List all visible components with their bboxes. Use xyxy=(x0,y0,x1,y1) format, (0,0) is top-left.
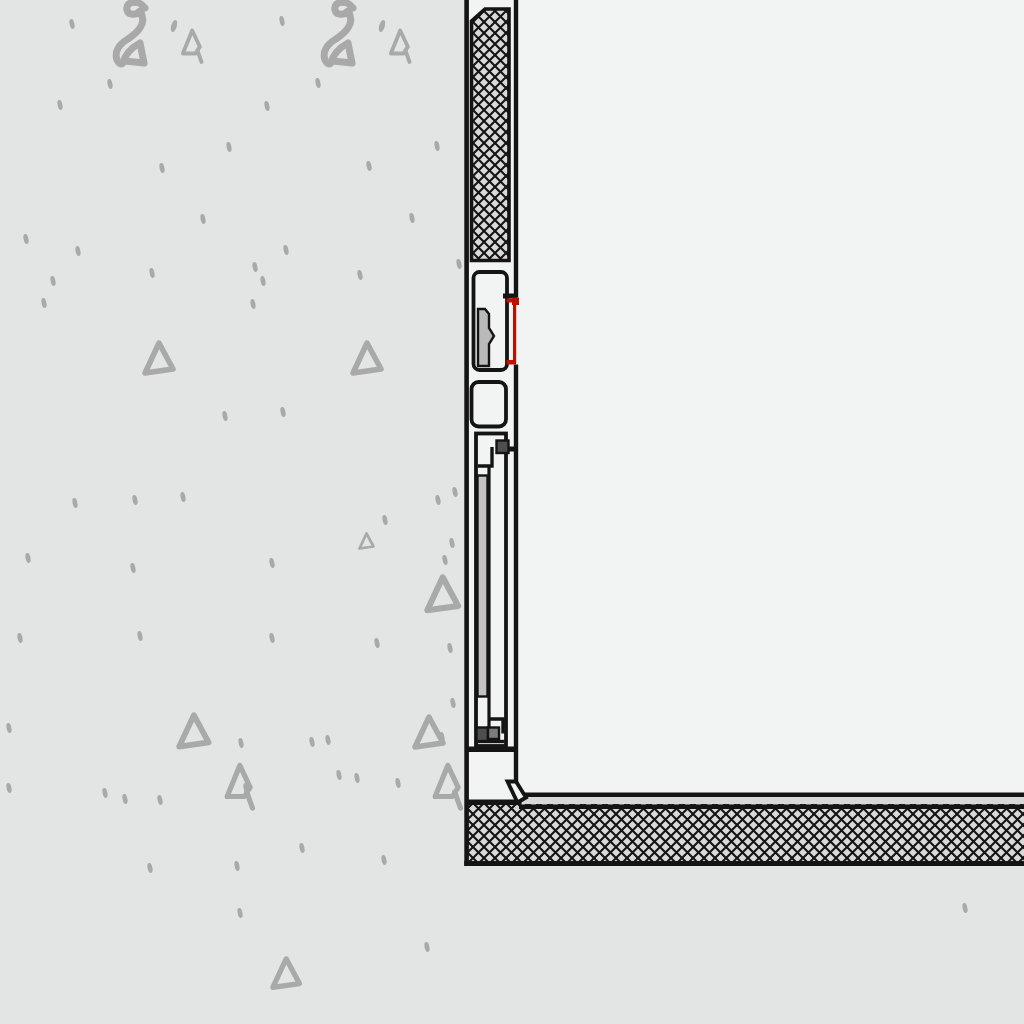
seal-top-jog xyxy=(507,299,514,303)
fastener-block-bottom-left xyxy=(477,728,489,742)
section-detail-drawing xyxy=(0,0,1024,1024)
floor-insulation-crosshatch xyxy=(467,804,1024,862)
floor-assembly xyxy=(464,793,1024,867)
drawing-canvas xyxy=(0,0,1024,1024)
floor-finish-line xyxy=(519,793,1024,798)
seal-vertical-line xyxy=(513,302,516,363)
reinforcement-bar xyxy=(478,476,488,697)
fastener-block-top xyxy=(497,441,509,454)
wall-edge-line xyxy=(464,0,469,866)
reveal-line-upper xyxy=(514,0,518,298)
fastener-block-bottom-right xyxy=(488,728,499,740)
floor-insulation-top-border-left xyxy=(467,800,522,806)
insulation-crosshatch-strip xyxy=(472,9,510,261)
frame-profile-middle xyxy=(472,382,507,427)
seal-bottom-jog xyxy=(507,360,517,365)
floor-insulation-top-border-right xyxy=(519,805,1024,810)
reveal-line-lower xyxy=(514,365,518,784)
sill-bottom-bar xyxy=(467,747,518,753)
interior-space xyxy=(467,0,1024,806)
floor-insulation-bottom-border xyxy=(464,861,1024,866)
